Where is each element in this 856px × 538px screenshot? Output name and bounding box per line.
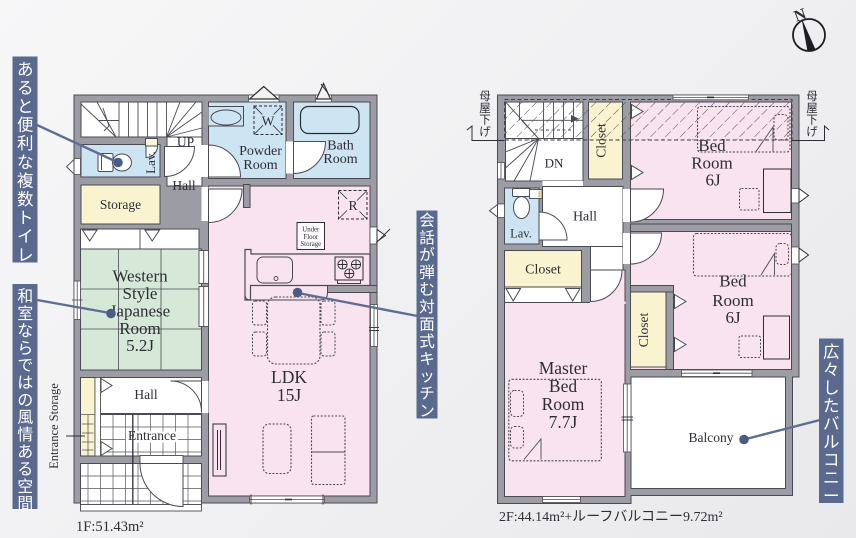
svg-text:Bed: Bed	[719, 272, 747, 291]
svg-text:下: 下	[806, 115, 818, 127]
svg-text:Japanese: Japanese	[110, 302, 170, 321]
svg-text:N: N	[792, 5, 809, 25]
svg-text:UP: UP	[177, 135, 194, 150]
svg-text:Room: Room	[542, 394, 585, 414]
svg-text:LDK: LDK	[271, 367, 307, 387]
svg-text:Master: Master	[539, 358, 588, 378]
svg-text:室: 室	[17, 305, 33, 323]
svg-text:バ: バ	[823, 415, 840, 434]
svg-text:Storage: Storage	[100, 197, 141, 212]
svg-text:あ: あ	[17, 60, 34, 79]
svg-text:6J: 6J	[725, 308, 741, 327]
svg-text:な: な	[17, 322, 33, 340]
svg-text:下: 下	[479, 115, 491, 127]
svg-text:キ: キ	[419, 351, 435, 368]
svg-text:面: 面	[419, 316, 435, 333]
svg-text:Lav.: Lav.	[510, 227, 532, 241]
svg-text:Closet: Closet	[636, 313, 651, 348]
svg-text:と: と	[17, 97, 34, 116]
svg-text:の: の	[17, 392, 33, 409]
svg-text:Floor: Floor	[303, 234, 318, 241]
svg-text:1F:51.43m²: 1F:51.43m²	[76, 519, 144, 535]
svg-text:る: る	[17, 462, 33, 479]
svg-text:話: 話	[419, 229, 435, 247]
svg-text:ル: ル	[823, 433, 840, 452]
svg-text:げ: げ	[806, 125, 818, 138]
svg-text:ト: ト	[17, 208, 34, 227]
svg-text:イ: イ	[17, 227, 34, 246]
svg-text:Hall: Hall	[573, 210, 597, 225]
svg-text:7.7J: 7.7J	[549, 412, 578, 432]
svg-text:15J: 15J	[277, 385, 302, 405]
svg-text:る: る	[17, 79, 34, 98]
svg-text:数: 数	[17, 190, 34, 209]
svg-text:な: な	[17, 153, 34, 172]
svg-text:し: し	[823, 379, 840, 398]
svg-text:げ: げ	[479, 125, 491, 138]
svg-text:た: た	[823, 397, 840, 416]
svg-text:空: 空	[17, 478, 33, 496]
svg-text:む: む	[419, 281, 435, 299]
svg-text:で: で	[17, 358, 33, 375]
svg-text:Style: Style	[123, 284, 158, 303]
svg-text:ニ: ニ	[823, 469, 840, 488]
svg-text:2F:44.14m²+ルーフバルコニー9.72m²: 2F:44.14m²+ルーフバルコニー9.72m²	[499, 510, 723, 525]
svg-text:W: W	[262, 114, 275, 129]
svg-text:Entrance: Entrance	[128, 428, 176, 443]
svg-text:屋: 屋	[479, 102, 491, 115]
svg-text:Powder: Powder	[239, 144, 282, 159]
svg-text:母: 母	[806, 90, 818, 103]
svg-text:コ: コ	[823, 451, 840, 470]
svg-text:Storage: Storage	[300, 241, 321, 248]
svg-text:R: R	[348, 198, 357, 213]
svg-text:会: 会	[419, 212, 435, 230]
svg-text:和: 和	[17, 288, 33, 306]
svg-text:は: は	[17, 375, 33, 392]
svg-text:5.2J: 5.2J	[126, 336, 154, 355]
svg-text:あ: あ	[17, 443, 33, 461]
svg-text:弾: 弾	[419, 263, 435, 281]
svg-text:複: 複	[17, 171, 34, 190]
svg-text:母: 母	[479, 90, 491, 103]
svg-text:式: 式	[419, 333, 435, 351]
svg-text:間: 間	[17, 496, 33, 513]
svg-text:6J: 6J	[705, 171, 721, 190]
svg-text:情: 情	[17, 426, 33, 444]
svg-text:屋: 屋	[806, 102, 818, 115]
svg-text:Balcony: Balcony	[689, 430, 734, 445]
svg-text:DN: DN	[545, 156, 564, 171]
svg-text:広: 広	[823, 343, 840, 362]
svg-text:Hall: Hall	[134, 387, 157, 402]
svg-text:チ: チ	[419, 386, 435, 403]
svg-text:Room: Room	[243, 158, 277, 173]
svg-text:ン: ン	[419, 403, 435, 420]
svg-text:利: 利	[17, 134, 34, 153]
svg-text:々: 々	[823, 361, 840, 380]
svg-text:ら: ら	[17, 340, 33, 357]
svg-text:対: 対	[419, 298, 435, 316]
svg-text:Entrance Storage: Entrance Storage	[47, 383, 61, 469]
svg-text:風: 風	[17, 410, 33, 427]
svg-text:ー: ー	[823, 487, 840, 506]
svg-text:ッ: ッ	[419, 368, 435, 385]
svg-text:Western: Western	[112, 267, 168, 286]
svg-text:Room: Room	[323, 152, 357, 167]
svg-text:レ: レ	[17, 246, 34, 265]
svg-text:が: が	[419, 246, 435, 264]
svg-text:Under: Under	[302, 227, 320, 234]
svg-text:Lav.: Lav.	[143, 151, 158, 174]
svg-text:Closet: Closet	[525, 263, 561, 278]
svg-text:Hall: Hall	[172, 178, 195, 193]
svg-text:便: 便	[17, 116, 34, 135]
